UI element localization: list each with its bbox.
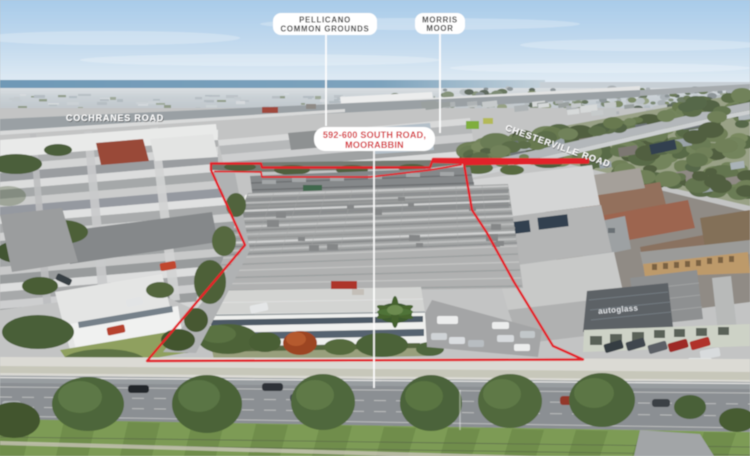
svg-text:592-600 SOUTH ROAD,: 592-600 SOUTH ROAD, (323, 130, 426, 140)
svg-text:PELLICANO: PELLICANO (299, 16, 351, 25)
svg-text:COMMON GROUNDS: COMMON GROUNDS (281, 25, 370, 34)
svg-text:COCHRANES ROAD: COCHRANES ROAD (66, 113, 164, 123)
svg-text:MOORABBIN: MOORABBIN (345, 140, 404, 150)
svg-text:MOOR: MOOR (426, 24, 453, 33)
